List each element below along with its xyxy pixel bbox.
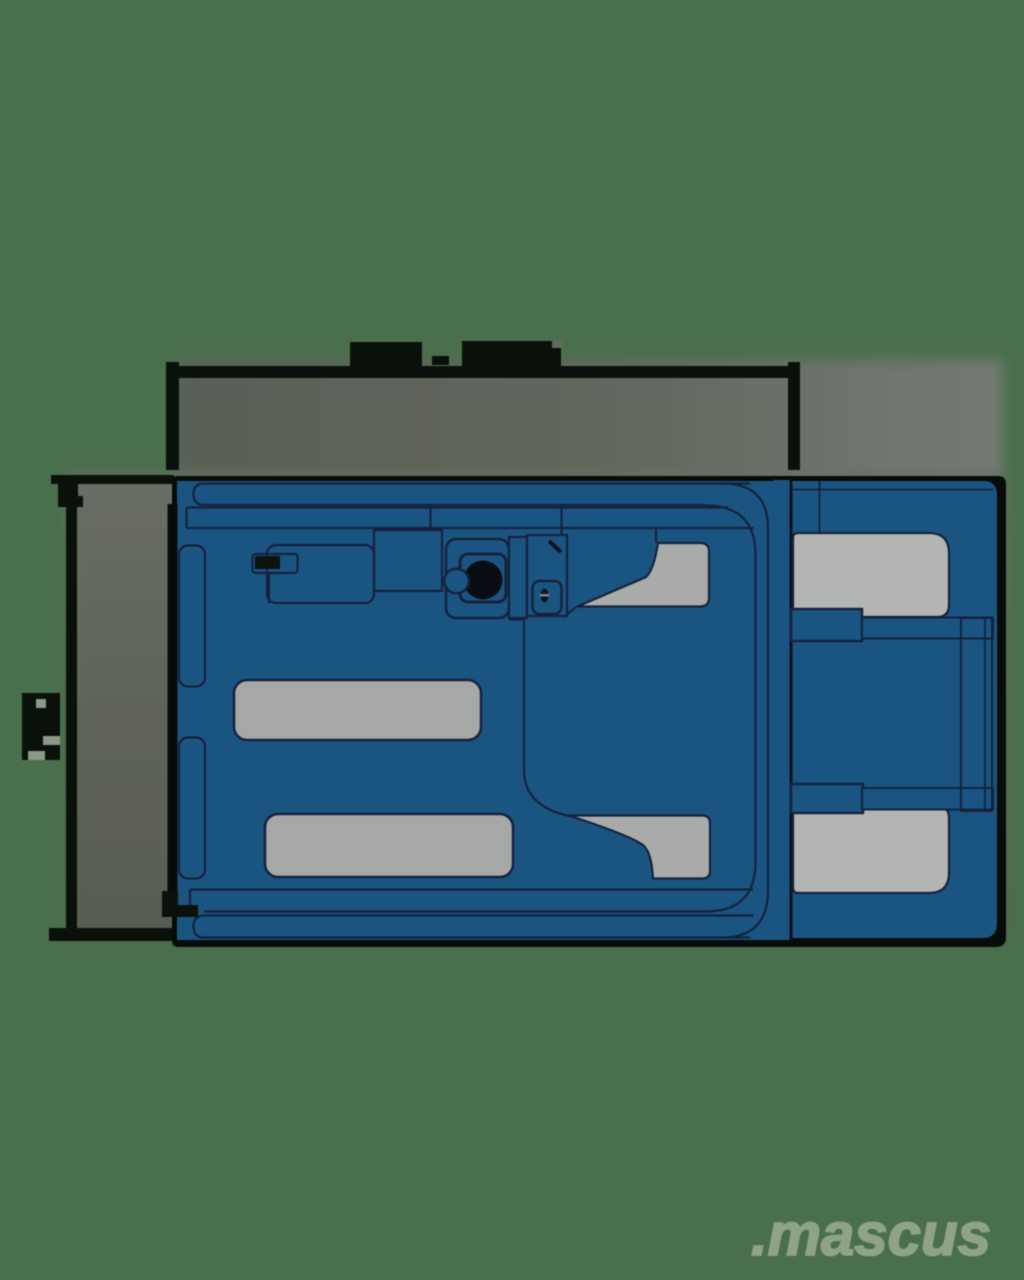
svg-text:.mascus: .mascus — [751, 1201, 991, 1268]
